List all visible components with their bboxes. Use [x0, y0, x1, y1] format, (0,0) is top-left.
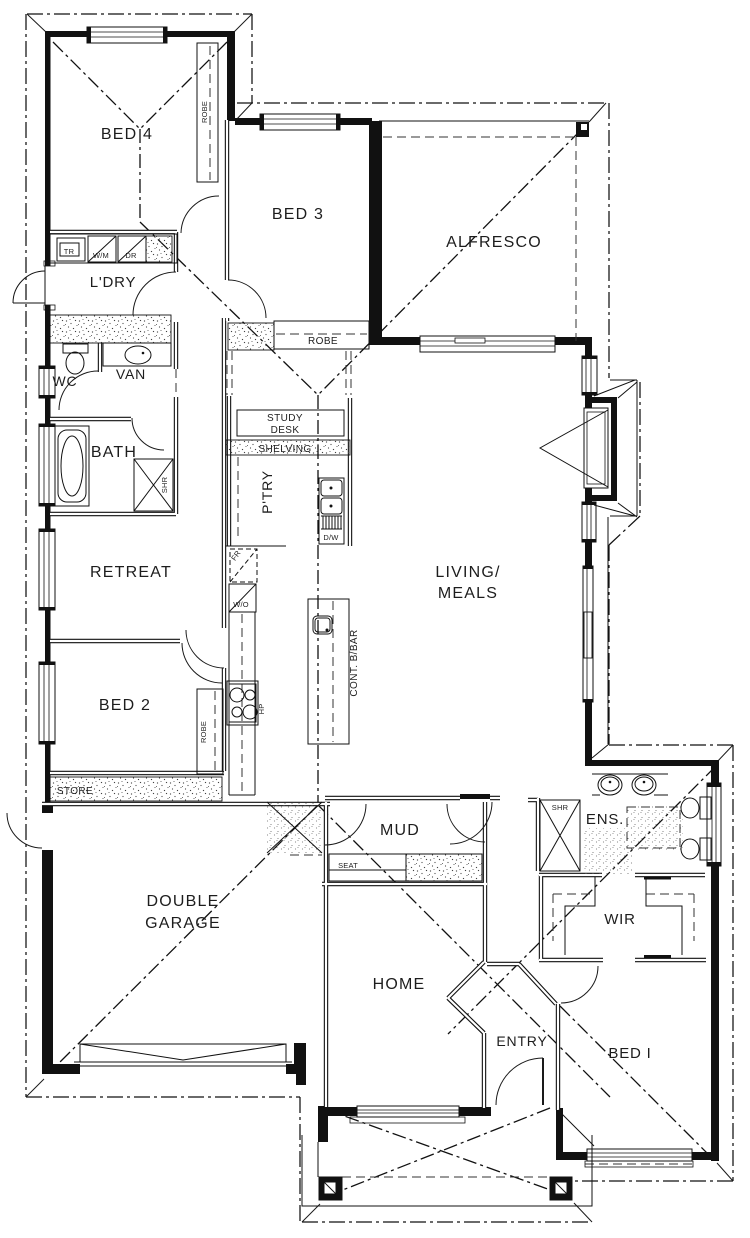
svg-text:STUDY: STUDY [267, 413, 303, 424]
svg-text:P'TRY: P'TRY [259, 470, 275, 514]
svg-text:HOME: HOME [373, 976, 426, 993]
svg-text:SHR: SHR [552, 803, 569, 812]
svg-text:VAN: VAN [116, 366, 146, 382]
svg-text:DOUBLE: DOUBLE [147, 893, 220, 910]
svg-text:SHR: SHR [160, 476, 169, 493]
svg-text:RETREAT: RETREAT [90, 564, 172, 581]
svg-text:HP: HP [257, 704, 266, 715]
svg-text:W/M: W/M [93, 251, 109, 260]
svg-text:ALFRESCO: ALFRESCO [446, 234, 542, 251]
svg-text:WIR: WIR [604, 911, 636, 928]
svg-text:ROBE: ROBE [200, 101, 209, 123]
svg-text:MUD: MUD [380, 822, 420, 839]
svg-text:LIVING/: LIVING/ [435, 564, 500, 581]
svg-text:SHELVING: SHELVING [258, 444, 311, 455]
svg-text:BED 3: BED 3 [272, 206, 324, 223]
svg-text:TR: TR [64, 247, 75, 256]
svg-text:D/W: D/W [323, 533, 339, 542]
svg-text:ENTRY: ENTRY [496, 1033, 547, 1049]
svg-text:BED 4: BED 4 [101, 126, 153, 143]
svg-text:W/O: W/O [233, 600, 249, 609]
svg-text:DR: DR [125, 251, 137, 260]
svg-text:CONT. B/BAR: CONT. B/BAR [349, 629, 360, 696]
svg-text:SEAT: SEAT [338, 861, 358, 870]
svg-text:STORE: STORE [57, 786, 93, 797]
svg-text:BED 2: BED 2 [99, 697, 151, 714]
svg-text:BATH: BATH [91, 444, 137, 461]
svg-text:MEALS: MEALS [438, 585, 498, 602]
svg-text:L'DRY: L'DRY [90, 274, 137, 291]
svg-text:WC: WC [53, 373, 78, 389]
svg-text:GARAGE: GARAGE [145, 915, 221, 932]
svg-text:DESK: DESK [271, 425, 300, 436]
svg-text:ENS.: ENS. [586, 811, 624, 828]
svg-text:ROBE: ROBE [199, 721, 208, 743]
svg-text:ROBE: ROBE [308, 336, 338, 347]
svg-text:BED I: BED I [608, 1045, 651, 1062]
